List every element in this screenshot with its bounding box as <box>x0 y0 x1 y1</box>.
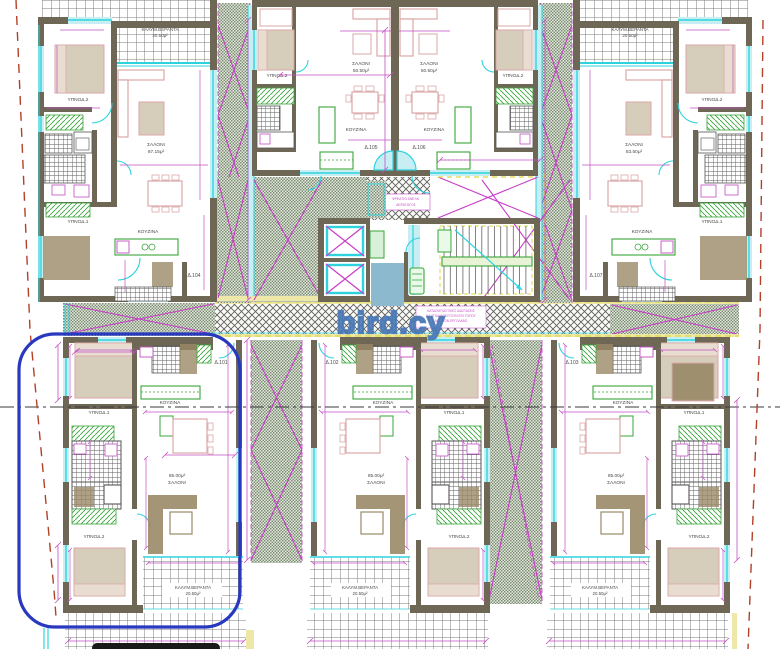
svg-text:ΥΠΝΟΔ.2: ΥΠΝΟΔ.2 <box>702 97 723 103</box>
svg-text:ΚΟΥΖΙΝΑ: ΚΟΥΖΙΝΑ <box>160 400 182 406</box>
svg-text:Δ.105: Δ.105 <box>364 145 377 151</box>
svg-text:ΥΠΝΟΔ.1: ΥΠΝΟΔ.1 <box>702 219 723 225</box>
svg-text:ΥΠΝΟΔ.1: ΥΠΝΟΔ.1 <box>444 410 465 416</box>
svg-text:ΚΟΥΖΙΝΑ: ΚΟΥΖΙΝΑ <box>373 400 395 406</box>
svg-text:85.00μ²: 85.00μ² <box>169 473 186 479</box>
svg-text:ΥΠΝΟΔ.2: ΥΠΝΟΔ.2 <box>503 73 524 79</box>
svg-text:ΥΠΝΟΔ.1: ΥΠΝΟΔ.1 <box>89 410 110 416</box>
svg-text:ΚΑΛΥΜ.ΒΕΡΑΝΤΑ: ΚΑΛΥΜ.ΒΕΡΑΝΤΑ <box>175 585 211 590</box>
svg-text:Δ.103: Δ.103 <box>565 360 578 366</box>
svg-text:ΚΟΥΖΙΝΑ: ΚΟΥΖΙΝΑ <box>632 229 654 235</box>
svg-text:ΥΠΝΟΔ.2: ΥΠΝΟΔ.2 <box>68 97 89 103</box>
svg-text:Δ.101: Δ.101 <box>214 360 227 366</box>
svg-text:ΣΑΛΟΝΙ: ΣΑΛΟΝΙ <box>607 480 625 486</box>
svg-text:ΣΑΛΟΝΙ: ΣΑΛΟΝΙ <box>420 61 438 67</box>
svg-text:87.15μ²: 87.15μ² <box>148 149 165 155</box>
svg-text:bird.cy: bird.cy <box>337 305 446 340</box>
svg-text:ΣΑΛΟΝΙ: ΣΑΛΟΝΙ <box>367 480 385 486</box>
svg-text:Δ.106: Δ.106 <box>412 145 425 151</box>
svg-text:ΣΑΛΟΝΙ: ΣΑΛΟΝΙ <box>147 142 165 148</box>
svg-text:ΚΑΛΥΜ.ΒΕΡΑΝΤΑ: ΚΑΛΥΜ.ΒΕΡΑΝΤΑ <box>611 27 648 32</box>
svg-text:83.50μ²: 83.50μ² <box>626 149 643 155</box>
svg-text:20.50μ²: 20.50μ² <box>186 591 202 596</box>
svg-text:Δ.104: Δ.104 <box>187 273 200 279</box>
svg-text:ΚΑΛΥΜ.ΒΕΡΑΝΤΑ: ΚΑΛΥΜ.ΒΕΡΑΝΤΑ <box>342 585 378 590</box>
svg-text:ΚΑΛΥΜ.ΒΕΡΑΝΤΑ: ΚΑΛΥΜ.ΒΕΡΑΝΤΑ <box>582 585 618 590</box>
svg-text:85.00μ²: 85.00μ² <box>608 473 625 479</box>
svg-text:20.50μ²: 20.50μ² <box>353 591 369 596</box>
svg-text:ΥΠΝΟΔ.1: ΥΠΝΟΔ.1 <box>68 219 89 225</box>
svg-text:ΚΟΥΖΙΝΑ: ΚΟΥΖΙΝΑ <box>346 127 368 133</box>
svg-text:ΚΑΛΥΜ.ΒΕΡΑΝΤΑ: ΚΑΛΥΜ.ΒΕΡΑΝΤΑ <box>141 27 178 32</box>
svg-text:50.50μ²: 50.50μ² <box>421 68 438 74</box>
svg-text:Δ.107: Δ.107 <box>589 273 602 279</box>
svg-text:ΑΕΡΑΓΩΓΟΣ: ΑΕΡΑΓΩΓΟΣ <box>396 203 416 207</box>
svg-text:ΣΑΛΟΝΙ: ΣΑΛΟΝΙ <box>168 480 186 486</box>
svg-text:85.00μ²: 85.00μ² <box>368 473 385 479</box>
svg-text:Δ.102: Δ.102 <box>325 360 338 366</box>
svg-text:ΥΠΝΟΔ.2: ΥΠΝΟΔ.2 <box>84 534 105 540</box>
svg-text:ΥΠΝΟΔ.2: ΥΠΝΟΔ.2 <box>449 534 470 540</box>
svg-text:ΣΑΛΟΝΙ: ΣΑΛΟΝΙ <box>352 61 370 67</box>
svg-text:50.50μ²: 50.50μ² <box>353 68 370 74</box>
svg-text:ΦΡΕΑΤΙΟ ΑΝΕΛΚ.: ΦΡΕΑΤΙΟ ΑΝΕΛΚ. <box>392 197 420 201</box>
svg-text:ΥΠΝΟΔ.1: ΥΠΝΟΔ.1 <box>684 410 705 416</box>
svg-text:ΚΟΥΖΙΝΑ: ΚΟΥΖΙΝΑ <box>613 400 635 406</box>
svg-text:ΣΑΛΟΝΙ: ΣΑΛΟΝΙ <box>625 142 643 148</box>
svg-text:20.50μ²: 20.50μ² <box>622 33 638 38</box>
svg-text:ΚΟΥΖΙΝΑ: ΚΟΥΖΙΝΑ <box>138 229 160 235</box>
svg-text:ΚΟΥΖΙΝΑ: ΚΟΥΖΙΝΑ <box>424 127 446 133</box>
svg-text:20.50μ²: 20.50μ² <box>593 591 609 596</box>
svg-text:20.50μ²: 20.50μ² <box>152 33 168 38</box>
svg-text:ΥΠΝΟΔ.2: ΥΠΝΟΔ.2 <box>689 534 710 540</box>
